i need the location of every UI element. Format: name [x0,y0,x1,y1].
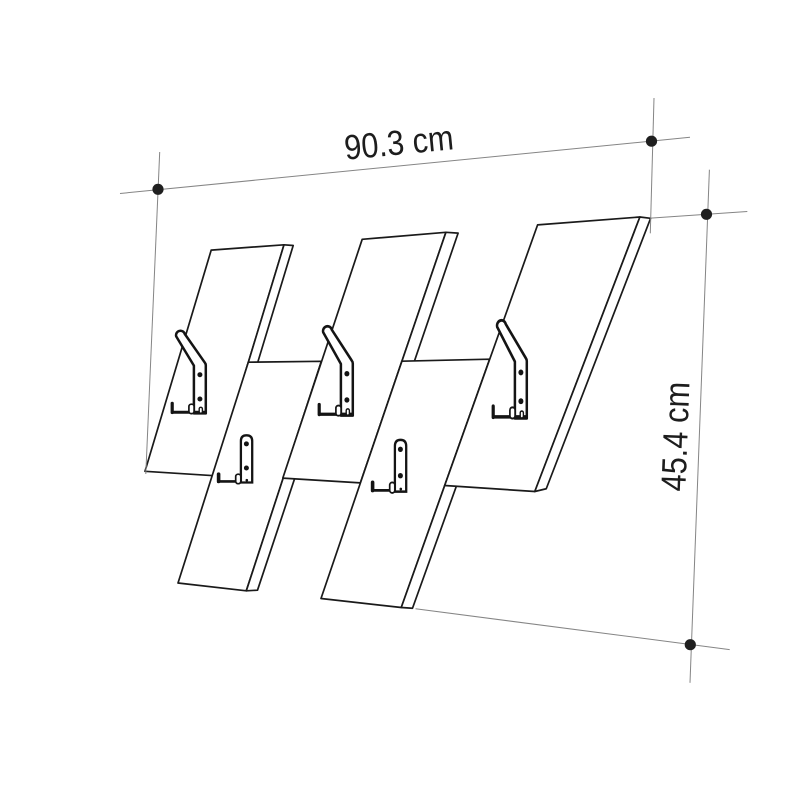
svg-text:45.4 cm: 45.4 cm [653,381,696,492]
